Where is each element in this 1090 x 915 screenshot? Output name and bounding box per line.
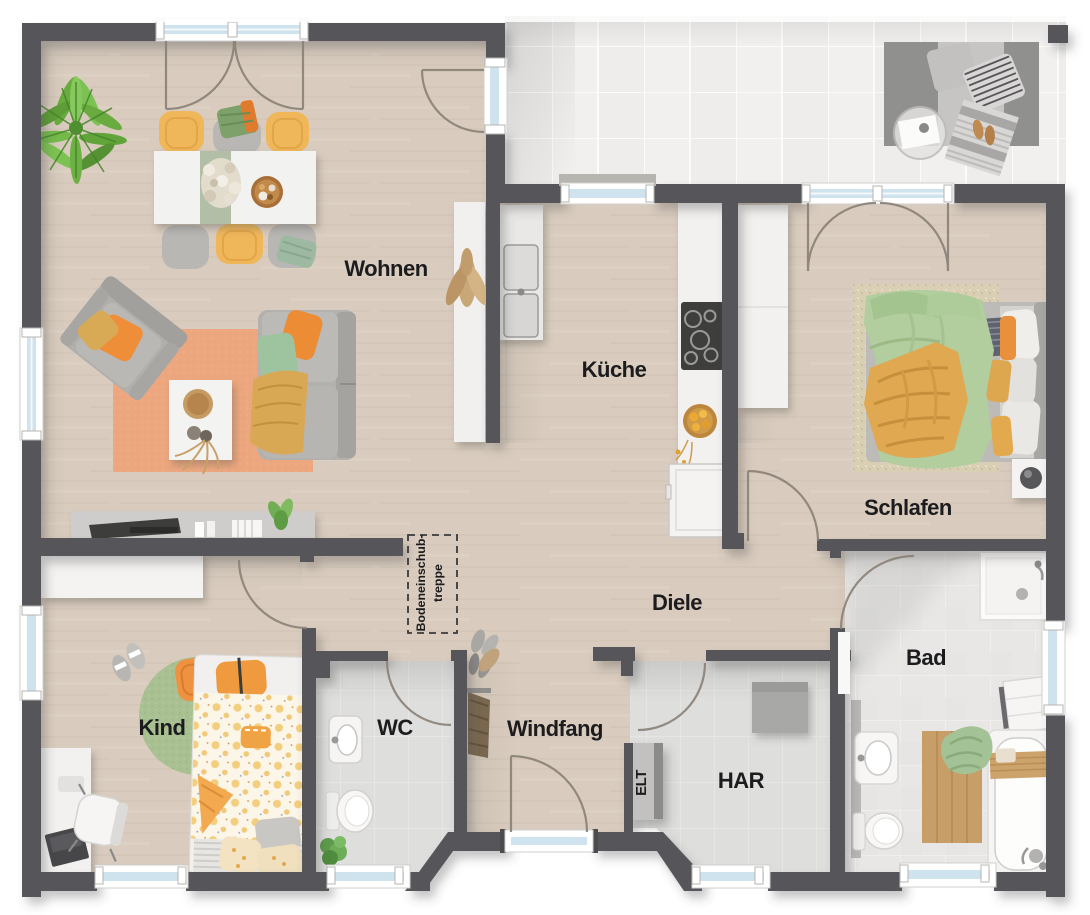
svg-text:Bad: Bad: [906, 645, 946, 670]
svg-text:Bodeneinschub-: Bodeneinschub-: [414, 534, 428, 631]
svg-text:Schlafen: Schlafen: [864, 495, 952, 520]
svg-text:ELT: ELT: [633, 770, 650, 796]
svg-text:Küche: Küche: [582, 357, 647, 382]
svg-text:Windfang: Windfang: [507, 716, 603, 741]
svg-text:Kind: Kind: [139, 715, 186, 740]
svg-text:WC: WC: [377, 715, 413, 740]
svg-text:treppe: treppe: [431, 564, 445, 602]
svg-text:HAR: HAR: [718, 768, 765, 793]
svg-text:Diele: Diele: [652, 590, 702, 615]
svg-text:Wohnen: Wohnen: [344, 256, 427, 281]
